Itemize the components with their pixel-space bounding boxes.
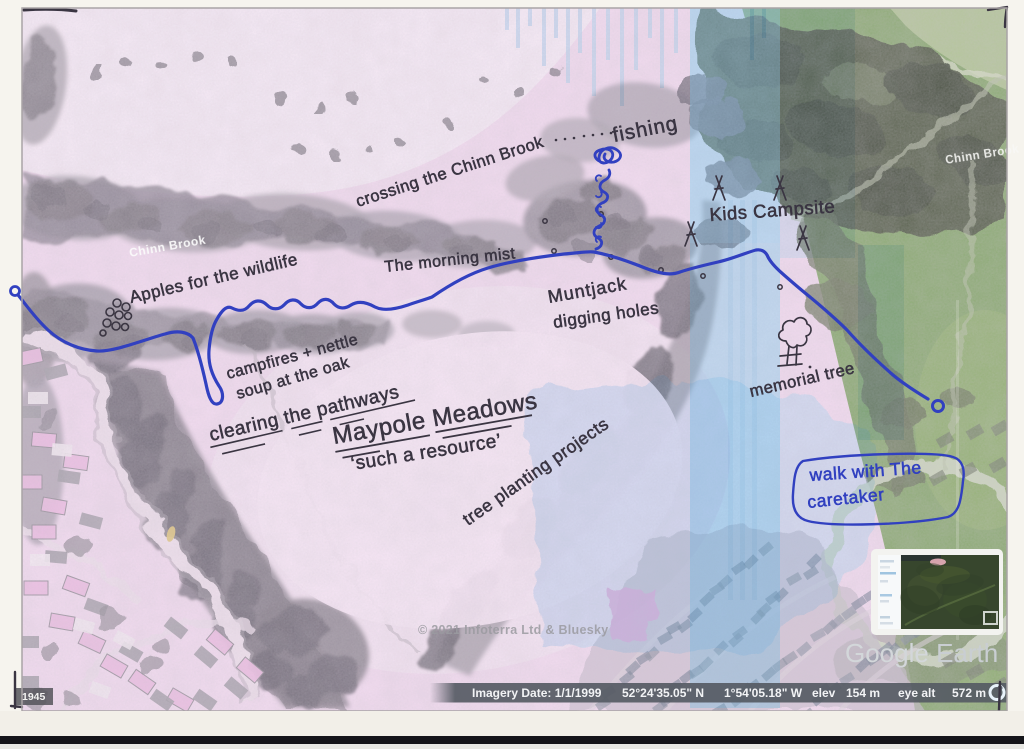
svg-text:1°54'05.18" W: 1°54'05.18" W: [724, 686, 803, 700]
svg-text:1945: 1945: [22, 691, 46, 703]
svg-text:Imagery Date: 1/1/1999: Imagery Date: 1/1/1999: [472, 686, 602, 700]
svg-text:Google Earth: Google Earth: [845, 638, 998, 668]
svg-text:eye alt: eye alt: [898, 686, 935, 700]
svg-text:52°24'35.05" N: 52°24'35.05" N: [622, 686, 704, 700]
svg-text:elev: elev: [812, 686, 836, 700]
svg-text:154 m: 154 m: [846, 686, 880, 700]
svg-text:© 2021 Infoterra Ltd & Bluesky: © 2021 Infoterra Ltd & Bluesky: [418, 623, 609, 637]
svg-text:572 m: 572 m: [952, 686, 986, 700]
